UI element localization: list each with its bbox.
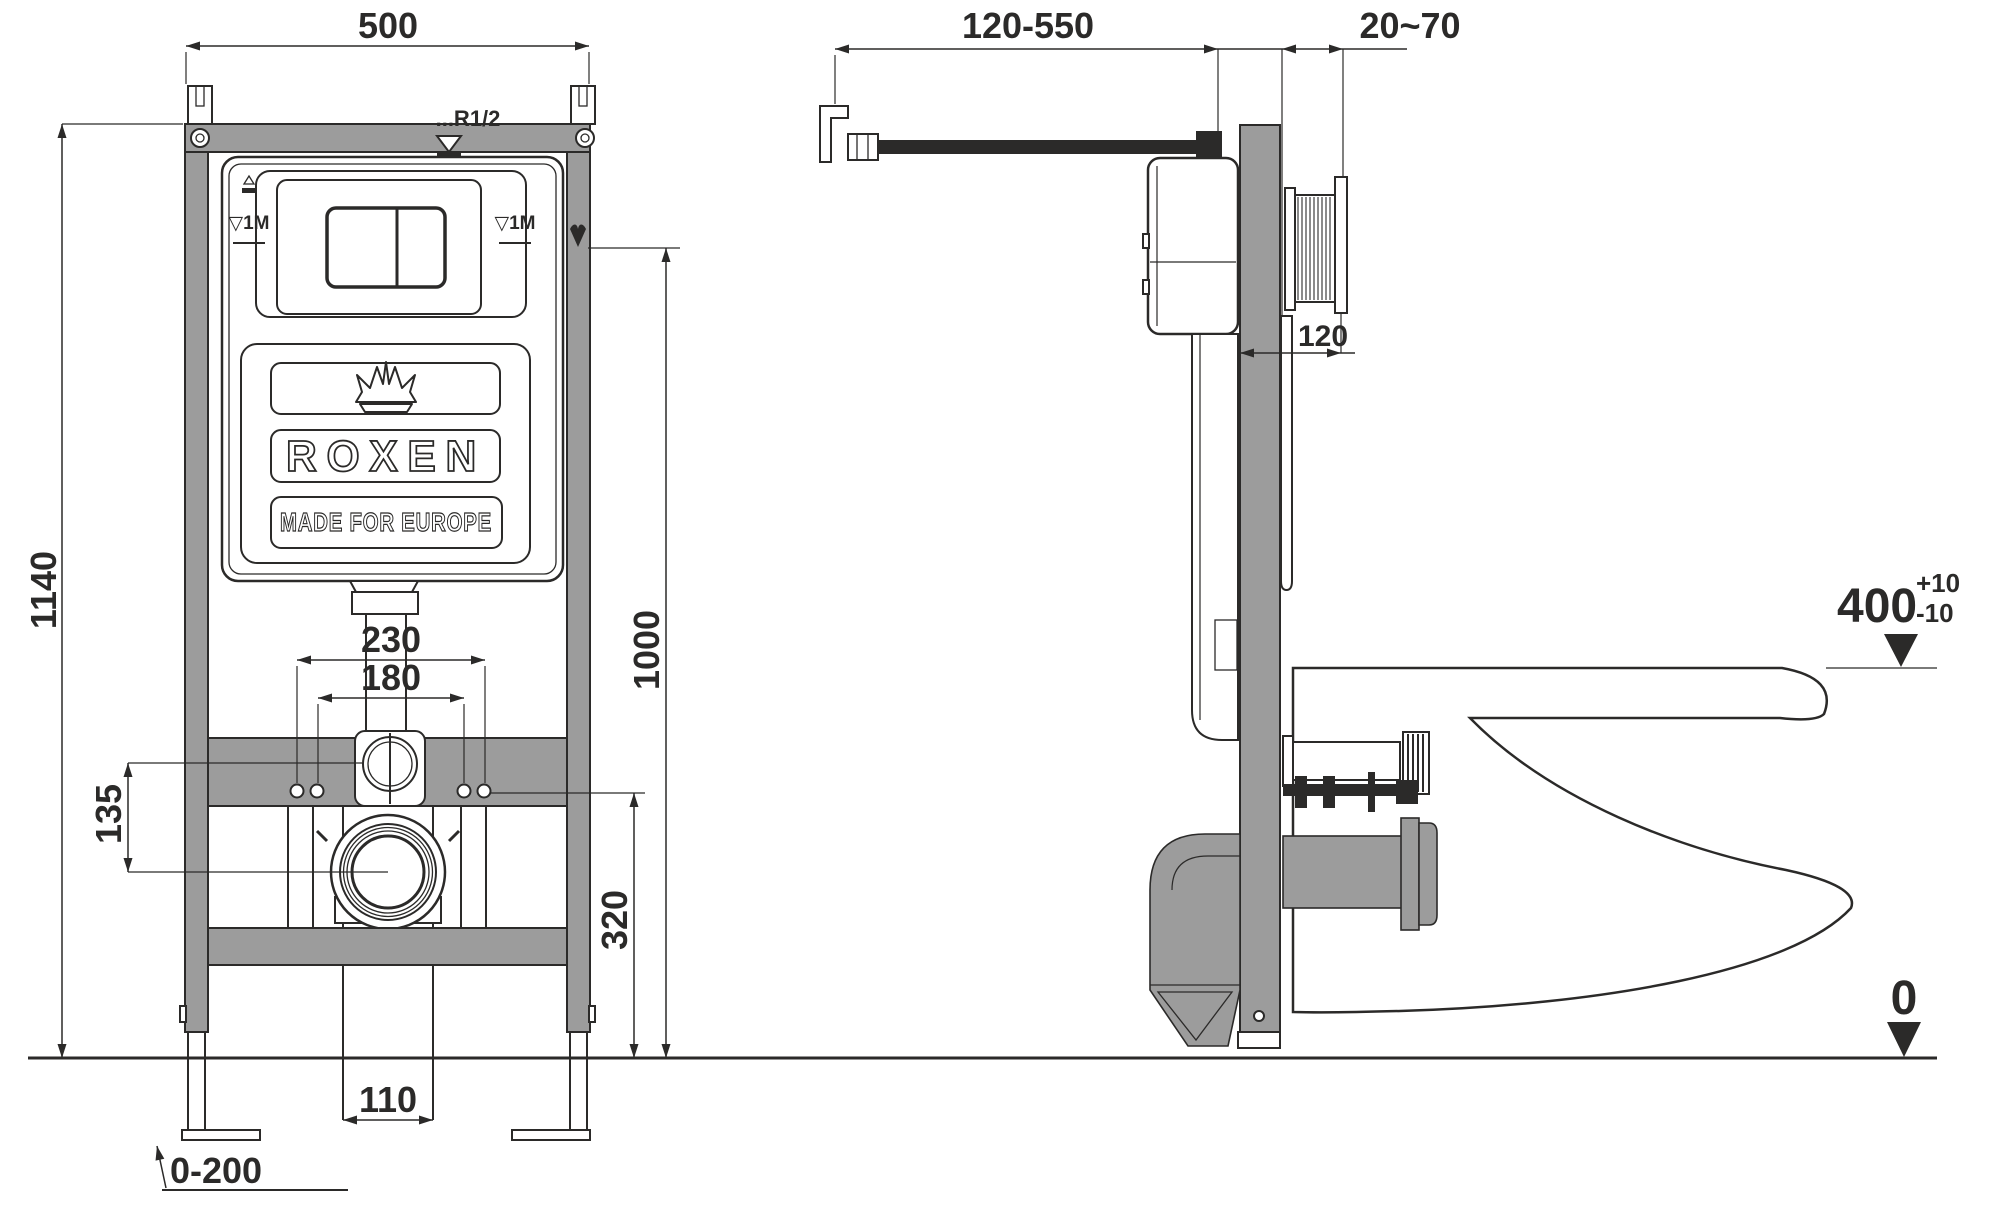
flush-valve-column [1192,334,1238,740]
datum-triangle-floor [1887,1022,1921,1057]
left-foot-plate [182,1130,260,1140]
installation-frame-drawing: ▽1M ▽1M ROXEN MADE FOR EUROPE [0,0,2000,1210]
strut-left [288,806,313,928]
fixing-hole [311,785,324,798]
brand-panel: ROXEN MADE FOR EUROPE [241,344,530,563]
dim-rim-tol-plus: +10 [1916,568,1960,598]
left-rail-clip [180,1006,186,1022]
supply-pipe-union [848,134,878,160]
flush-buttons [327,208,445,287]
brand-tagline: MADE FOR EUROPE [280,507,492,537]
drain-elbow [1150,834,1240,1046]
hanger-bracket-right [571,86,595,124]
frame-rail-right [567,124,590,1032]
dim-frame-height: 1140 [23,551,64,629]
cistern-side [1143,158,1238,740]
dim-drain-offset: 135 [88,784,129,844]
dim-inlet-length: 120-550 [962,5,1094,46]
floor-datum: 0 [1887,972,1921,1057]
level-mark-left: ▽1M [228,213,269,234]
brand-name: ROXEN [286,432,486,481]
flush-bend-fitting [355,731,425,806]
dim-inlet-height: 1000 [626,610,667,690]
dim-drain-width: 110 [359,1079,417,1120]
datum-triangle-rim [1884,634,1918,667]
dim-fixing-inner: 180 [361,657,421,698]
side-foot [1238,1032,1280,1048]
strut-right [461,806,486,928]
fixing-hole [458,785,471,798]
frame-rail-side [1240,125,1280,1032]
dim-frame-depth: 120 [1298,320,1348,353]
lower-crossbar [208,928,567,965]
fixing-hole [478,785,491,798]
wall-bracket [820,106,848,162]
screw-head-right [576,129,594,147]
right-leg-tube [570,1032,587,1132]
water-inlet-label: ...R1/2 [436,106,501,131]
dim-rim-tol-minus: -10 [1916,598,1954,628]
inlet-valve-fitting [1196,131,1222,161]
fixing-hole [291,785,304,798]
left-leg-tube [188,1032,205,1132]
top-rail [185,124,590,152]
level-mark-right: ▽1M [494,213,535,234]
drawing-canvas: ▽1M ▽1M ROXEN MADE FOR EUROPE [0,0,2000,1210]
frame-rail-left [185,124,208,1032]
rail-bolt-hole [1254,1011,1264,1021]
finished-wall-strip [1281,316,1292,590]
dim-rim-height: 400 [1837,580,1917,633]
flush-access-shaft [1285,177,1347,313]
dim-floor-level: 0 [1891,972,1918,1025]
screw-head-left [191,129,209,147]
dim-outlet-height: 320 [594,890,635,950]
water-supply-pipe [878,140,1198,154]
rim-height-datum: 400 +10 -10 [1837,568,1960,667]
right-rail-clip [589,1006,595,1022]
front-view: ▽1M ▽1M ROXEN MADE FOR EUROPE [180,86,595,1140]
right-foot-plate [512,1130,590,1140]
dim-frame-width: 500 [358,5,418,46]
dim-wall-finish: 20~70 [1359,5,1460,46]
dim-fixing-outer: 230 [361,619,421,660]
dim-leg-adjust: 0-200 [170,1150,262,1191]
side-view [820,106,1937,1048]
hanger-bracket-left [188,86,212,124]
